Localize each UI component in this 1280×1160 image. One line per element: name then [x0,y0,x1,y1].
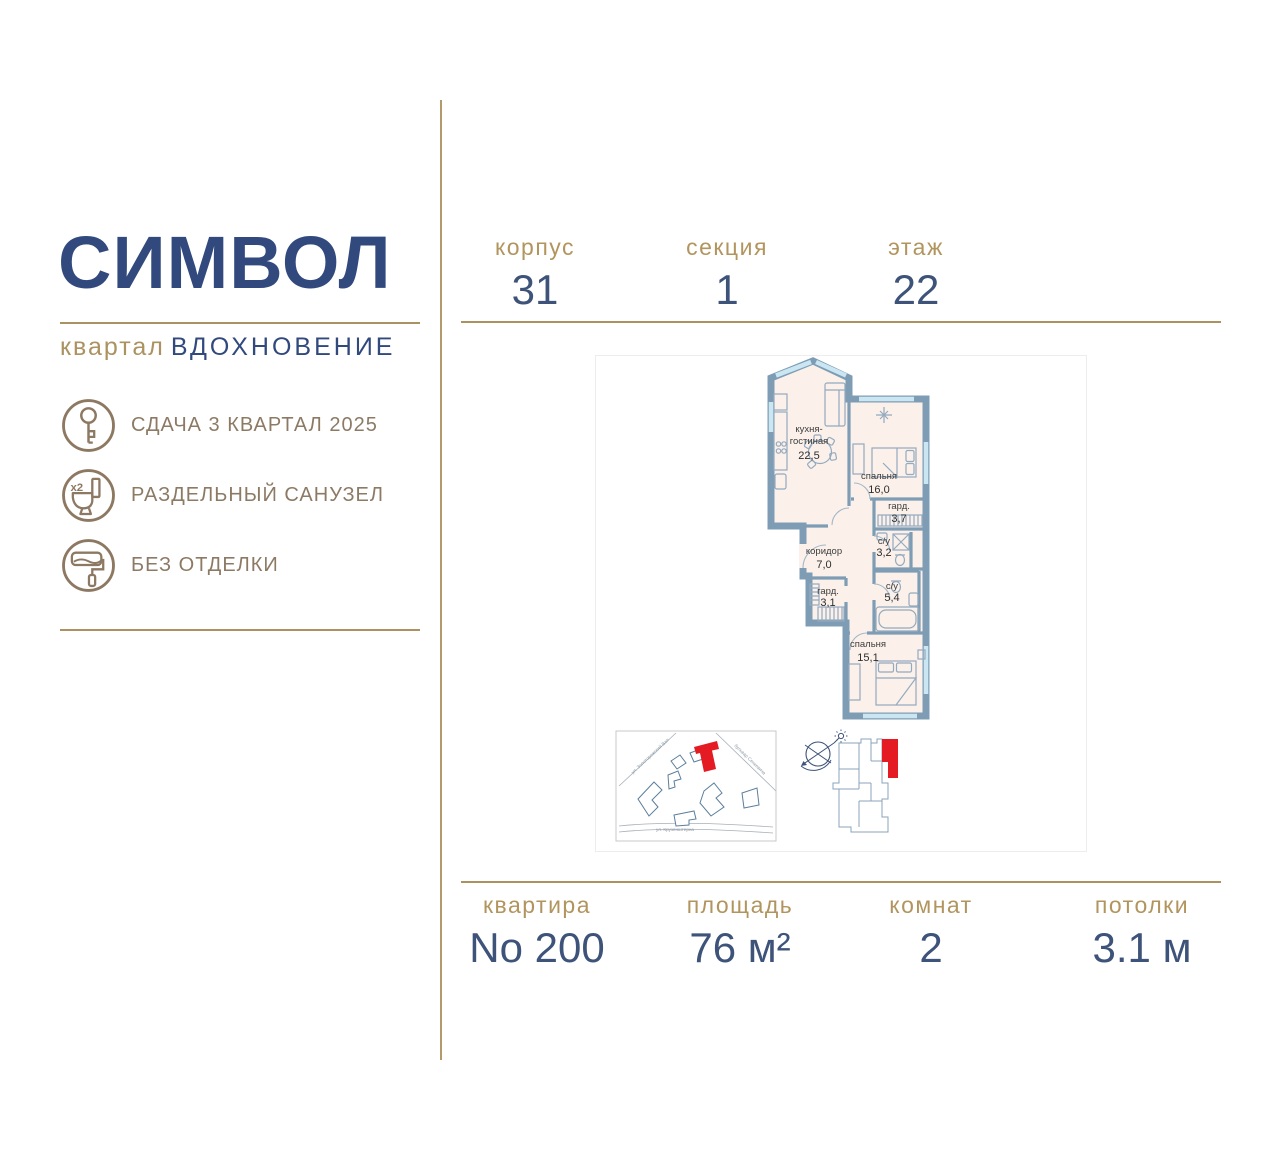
floor-plate-apartment-highlight [882,739,898,778]
room-wardrobe1-name: гард. [888,501,910,512]
ploshchad-value: 76 м² [640,924,840,972]
korpus-value: 31 [435,266,635,314]
apt-rooms: комнат 2 [831,892,1031,972]
floor-plan-panel: кухня- гостиная 22,5 спальня 16,0 гард. … [595,355,1087,852]
brand-subtitle-prefix: квартал [60,333,165,361]
building-sektsiya: секция 1 [627,234,827,314]
paint-roller-icon [60,537,117,594]
room-bath1-name: с/у [878,536,890,547]
brand-logo: СИМВОЛ [58,226,424,300]
apt-area: площадь 76 м² [640,892,840,972]
etazh-label: этаж [816,234,1016,261]
room-kitchen-name2: гостиная [790,436,829,447]
room-corridor-area: 7,0 [816,559,831,571]
apt-number: квартира No 200 [437,892,637,972]
feature-bathrooms: x2 РАЗДЕЛЬНЫЙ САНУЗЕЛ [60,467,430,524]
room-wardrobe2-area: 3,1 [820,597,835,609]
feature-finish-label: БЕЗ ОТДЕЛКИ [131,554,279,577]
floor-plate [833,739,898,832]
room-wardrobe2-name: гард. [817,586,839,597]
brand-subtitle: кварталВДОХНОВЕНИЕ [60,333,440,362]
logo-divider [60,322,420,324]
sektsiya-value: 1 [627,266,827,314]
apt-ceiling: потолки 3.1 м [1042,892,1242,972]
room-bath2-area: 5,4 [884,592,899,604]
room-corridor-name: коридор [806,546,842,557]
feature-delivery: СДАЧА 3 КВАРТАЛ 2025 [60,397,430,454]
feature-list: СДАЧА 3 КВАРТАЛ 2025 x2 РАЗДЕЛЬНЫЙ САНУЗ… [60,397,430,594]
building-korpus: корпус 31 [435,234,635,314]
room-kitchen-area: 22,5 [798,450,819,462]
ploshchad-label: площадь [640,892,840,919]
room-bedroom1-name: спальня [861,471,897,482]
komnat-value: 2 [831,924,1031,972]
left-divider [60,629,420,631]
room-bath1-area: 3,2 [876,547,891,559]
room-bedroom2-name: спальня [850,639,886,650]
footer-divider [461,881,1221,883]
key-icon [60,397,117,454]
feature-delivery-label: СДАЧА 3 КВАРТАЛ 2025 [131,414,378,437]
room-kitchen-name1: кухня- [795,424,822,435]
header-divider [461,321,1221,323]
komnat-label: комнат [831,892,1031,919]
street-label-3: ул. Крузенштерна [656,827,694,832]
feature-bathrooms-label: РАЗДЕЛЬНЫЙ САНУЗЕЛ [131,484,384,507]
kvartira-value: No 200 [437,924,637,972]
room-wardrobe1-area: 3,7 [891,513,906,525]
etazh-value: 22 [816,266,1016,314]
room-bath2-name: с/у [886,581,898,592]
kvartira-label: квартира [437,892,637,919]
potolki-value: 3.1 м [1042,924,1242,972]
room-bedroom2-area: 15,1 [857,652,878,664]
building-etazh: этаж 22 [816,234,1016,314]
brand-subtitle-main: ВДОХНОВЕНИЕ [171,333,396,361]
toilet-icon: x2 [60,467,117,524]
potolki-label: потолки [1042,892,1242,919]
toilet-badge: x2 [70,482,83,494]
floor-plan: кухня- гостиная 22,5 спальня 16,0 гард. … [596,356,1086,851]
site-map: ул. Золоторожский Вал бульвар Сенкевича … [616,731,776,841]
korpus-label: корпус [435,234,635,261]
room-bedroom1-area: 16,0 [868,484,889,496]
feature-finish: БЕЗ ОТДЕЛКИ [60,537,430,594]
sektsiya-label: секция [627,234,827,261]
